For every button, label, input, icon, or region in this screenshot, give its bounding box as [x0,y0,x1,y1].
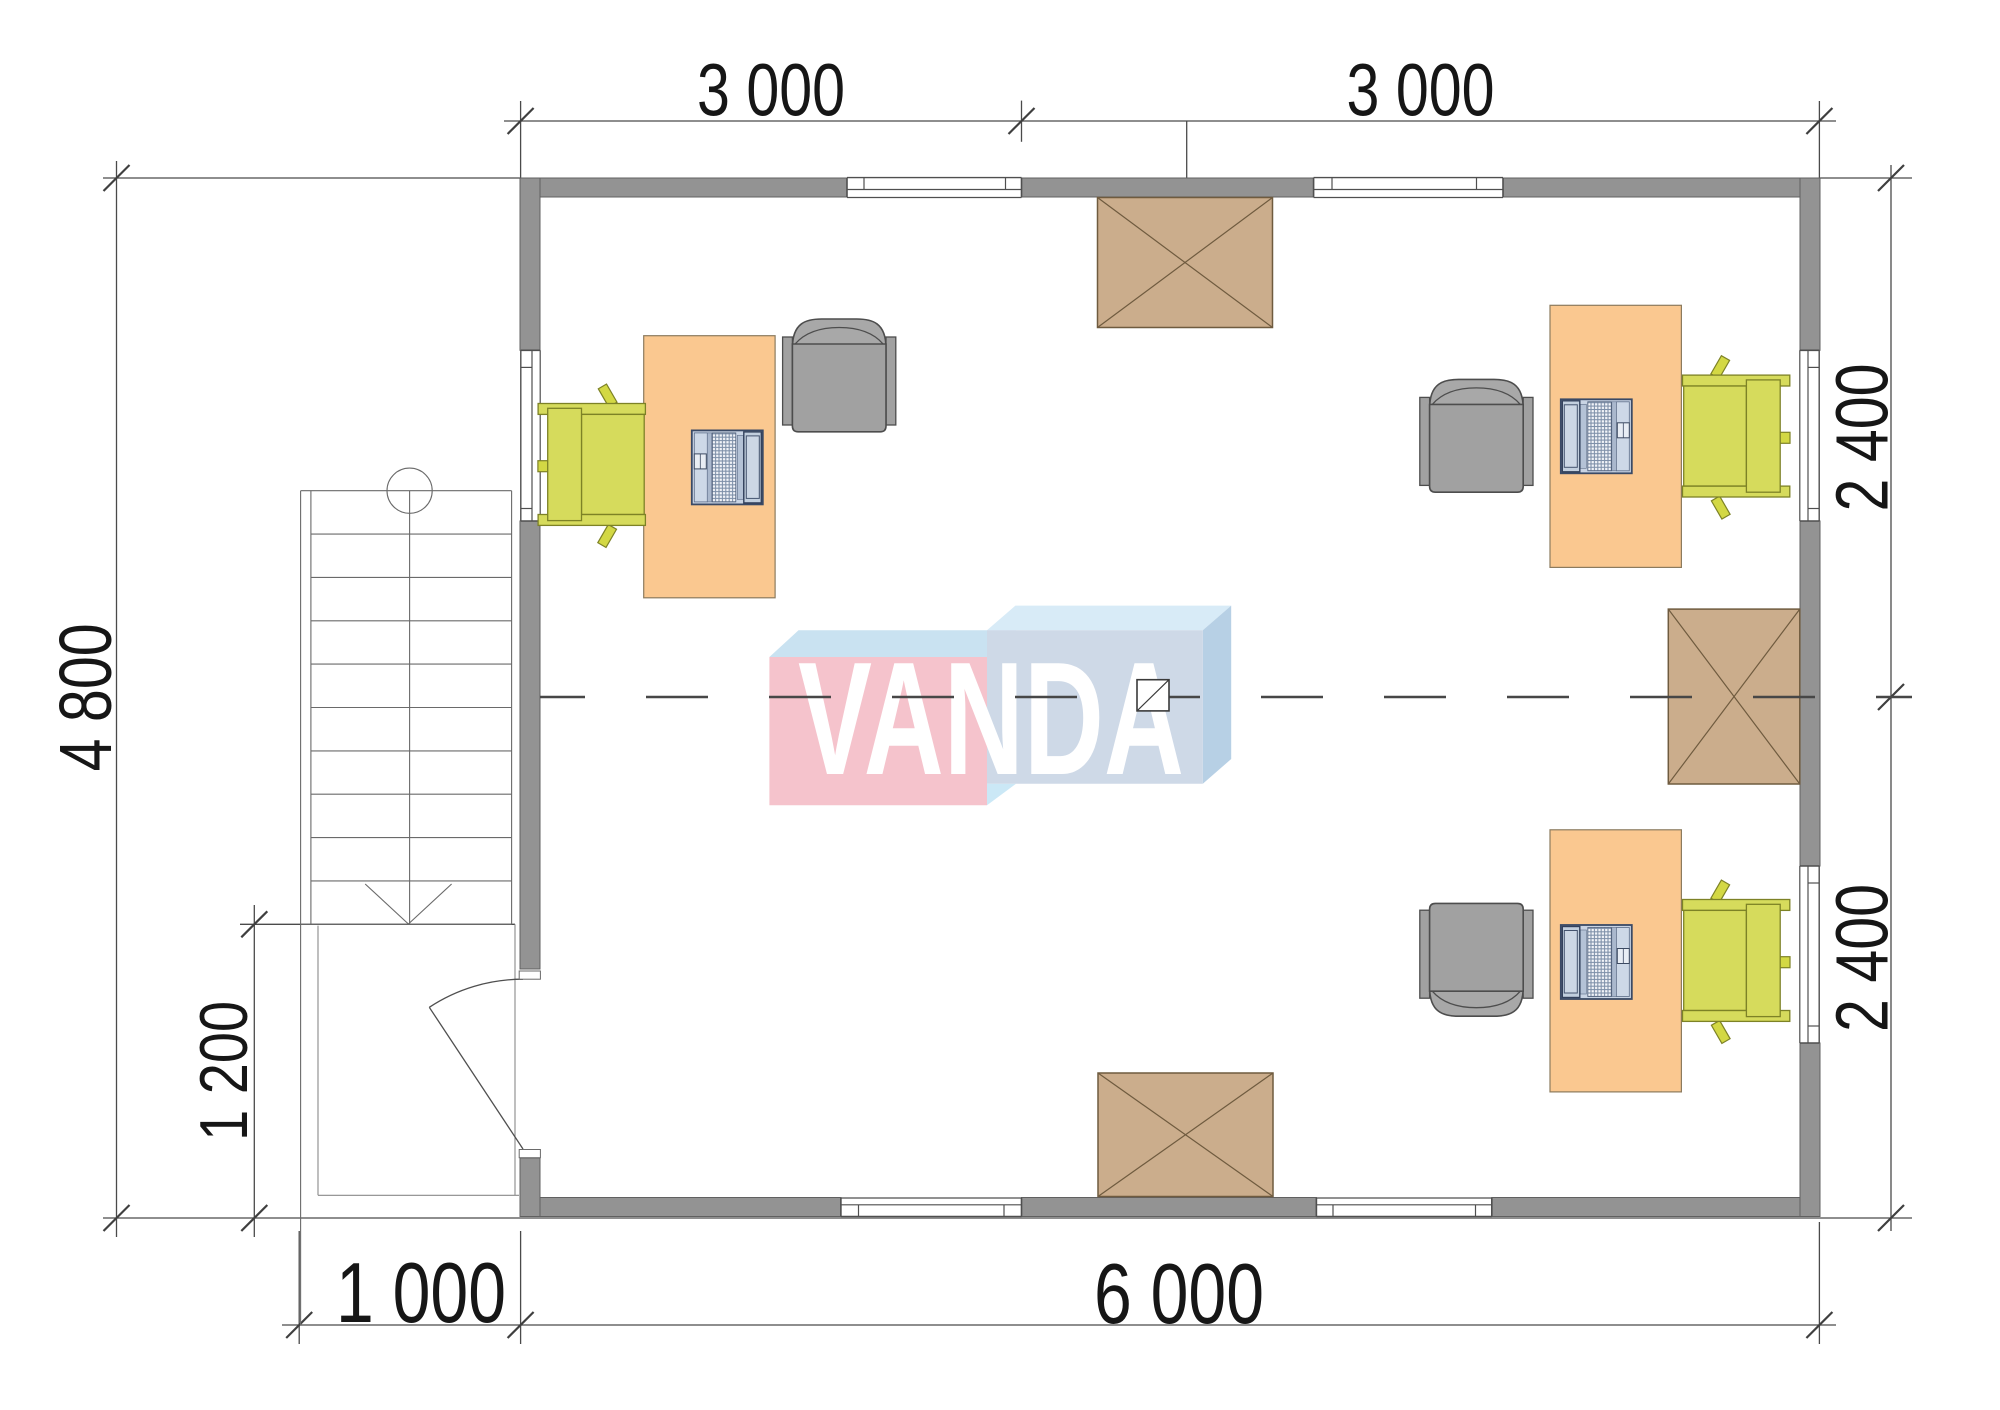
svg-text:2 400: 2 400 [1821,884,1904,1032]
svg-text:3 000: 3 000 [697,49,845,132]
svg-text:6 000: 6 000 [1094,1247,1264,1342]
svg-text:2 400: 2 400 [1821,364,1904,512]
svg-text:3 000: 3 000 [1347,49,1495,132]
svg-text:1 000: 1 000 [336,1246,506,1341]
svg-text:1 200: 1 200 [186,1001,262,1141]
svg-text:4 800: 4 800 [44,623,127,771]
svg-text:VANDA: VANDA [798,629,1184,809]
